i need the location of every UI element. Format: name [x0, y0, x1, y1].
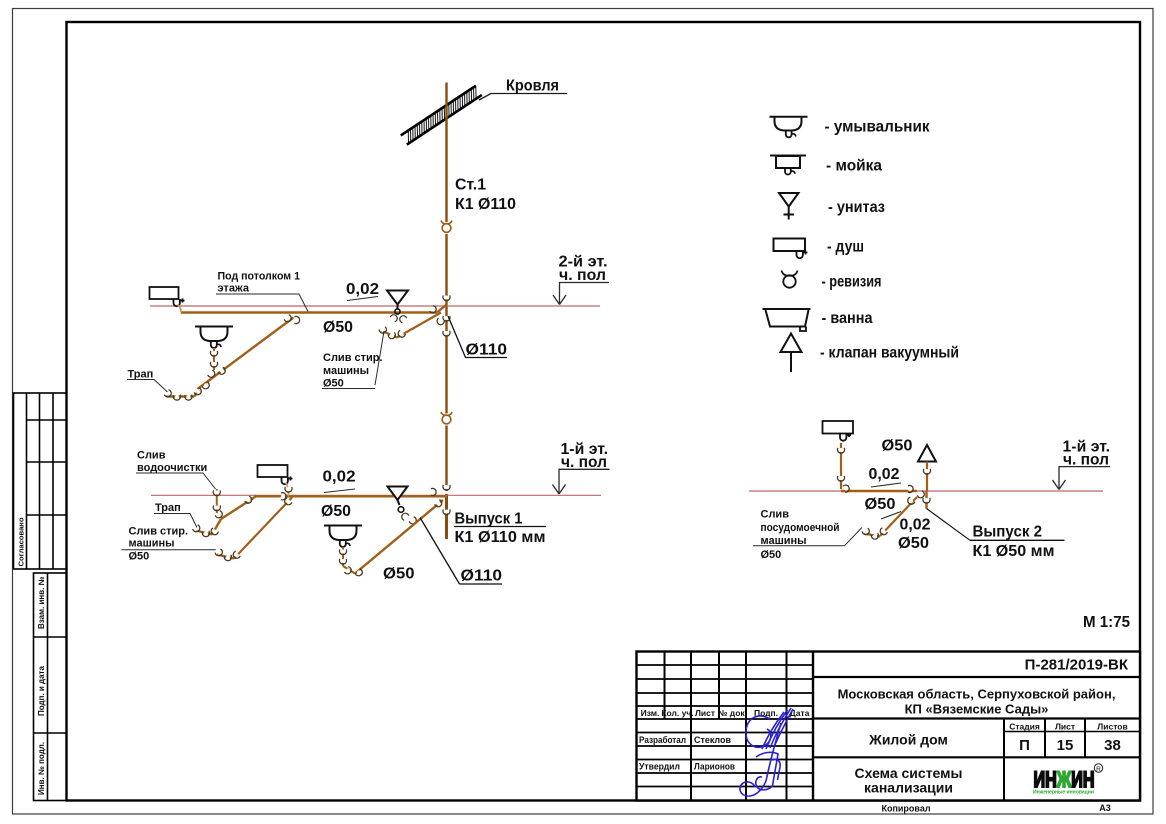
svg-text:М 1:75: М 1:75	[1083, 614, 1130, 631]
svg-text:машины: машины	[129, 538, 175, 550]
svg-text:этажа: этажа	[218, 283, 250, 295]
svg-text:Ø50: Ø50	[383, 566, 415, 583]
svg-text:Московская область, Серпуховск: Московская область, Серпуховской район,	[838, 687, 1116, 702]
svg-text:канализации: канализации	[864, 780, 953, 796]
svg-text:Ø50: Ø50	[882, 438, 913, 455]
svg-text:15: 15	[1057, 737, 1074, 754]
svg-text:Ø50: Ø50	[321, 503, 351, 520]
svg-text:Трап: Трап	[128, 369, 154, 381]
svg-text:Согласовано: Согласовано	[17, 517, 26, 566]
svg-text:ч. пол: ч. пол	[559, 267, 606, 284]
svg-text:ИНЖИН: ИНЖИН	[1034, 767, 1095, 792]
svg-text:R: R	[1096, 766, 1101, 773]
svg-text:Кол. уч.: Кол. уч.	[661, 708, 693, 718]
svg-text:ч. пол: ч. пол	[561, 454, 607, 471]
svg-text:Ø110: Ø110	[466, 342, 508, 359]
svg-text:К1 Ø50 мм: К1 Ø50 мм	[973, 543, 1055, 560]
svg-text:К1 Ø110: К1 Ø110	[455, 196, 516, 213]
svg-text:Слив стир.: Слив стир.	[323, 352, 383, 364]
svg-text:А3: А3	[1099, 803, 1111, 813]
svg-text:0,02: 0,02	[869, 466, 900, 483]
svg-text:Разработал: Разработал	[639, 735, 686, 746]
svg-text:№ док.: № док.	[718, 708, 747, 718]
svg-text:Кровля: Кровля	[506, 78, 559, 95]
svg-text:- клапан вакуумный: - клапан вакуумный	[820, 345, 959, 362]
svg-text:Ларионов: Ларионов	[694, 762, 735, 773]
svg-text:- унитаз: - унитаз	[828, 199, 885, 216]
svg-text:Ø50: Ø50	[323, 378, 344, 390]
svg-text:0,02: 0,02	[900, 517, 931, 534]
svg-text:П-281/2019-ВК: П-281/2019-ВК	[1025, 657, 1129, 674]
svg-text:Инженерные инновации: Инженерные инновации	[1033, 790, 1094, 796]
svg-text:посудомоечной: посудомоечной	[761, 522, 840, 534]
svg-text:КП «Вяземские Сады»: КП «Вяземские Сады»	[905, 702, 1049, 717]
svg-text:Слив стир.: Слив стир.	[129, 526, 189, 538]
svg-text:Листов: Листов	[1097, 722, 1127, 732]
svg-text:Выпуск 1: Выпуск 1	[455, 511, 523, 528]
svg-text:- ревизия: - ревизия	[822, 274, 882, 291]
svg-text:П: П	[1019, 737, 1030, 754]
svg-text:Взам. инв. №: Взам. инв. №	[37, 576, 46, 629]
svg-text:- умывальник: - умывальник	[825, 119, 930, 136]
svg-text:Лист: Лист	[695, 708, 715, 718]
svg-text:Ст.1: Ст.1	[455, 177, 486, 194]
svg-text:Трап: Трап	[155, 502, 181, 514]
svg-text:Слив: Слив	[761, 509, 790, 521]
svg-text:машины: машины	[323, 365, 369, 377]
svg-text:Изм.: Изм.	[641, 708, 660, 718]
svg-text:Слив: Слив	[137, 450, 166, 462]
svg-text:Утвердил: Утвердил	[639, 762, 680, 773]
svg-text:Ø110: Ø110	[461, 568, 503, 585]
svg-text:- ванна: - ванна	[822, 310, 873, 327]
svg-text:Ø50: Ø50	[129, 551, 150, 563]
svg-text:0,02: 0,02	[323, 469, 356, 486]
svg-text:Инв. № подл.: Инв. № подл.	[37, 742, 46, 795]
svg-text:Жилой дом: Жилой дом	[868, 732, 948, 748]
svg-text:Под потолком 1: Под потолком 1	[218, 271, 301, 283]
svg-text:Ø50: Ø50	[865, 496, 896, 513]
svg-text:Ø50: Ø50	[761, 549, 782, 561]
svg-text:0,02: 0,02	[346, 281, 379, 298]
svg-text:водоочистки: водоочистки	[137, 462, 207, 474]
svg-text:Ø50: Ø50	[898, 535, 929, 552]
svg-text:Выпуск 2: Выпуск 2	[973, 524, 1043, 541]
svg-text:Подп. и дата: Подп. и дата	[37, 666, 46, 716]
svg-text:Ø50: Ø50	[323, 319, 353, 336]
svg-text:38: 38	[1104, 737, 1121, 754]
svg-text:К1 Ø110 мм: К1 Ø110 мм	[455, 529, 546, 546]
svg-text:Лист: Лист	[1055, 722, 1075, 732]
svg-text:Копировал: Копировал	[881, 804, 930, 814]
svg-text:- душ: - душ	[827, 239, 864, 256]
svg-text:Стадия: Стадия	[1009, 722, 1040, 732]
svg-text:- мойка: - мойка	[826, 158, 882, 175]
svg-text:Стеклов: Стеклов	[694, 735, 731, 746]
